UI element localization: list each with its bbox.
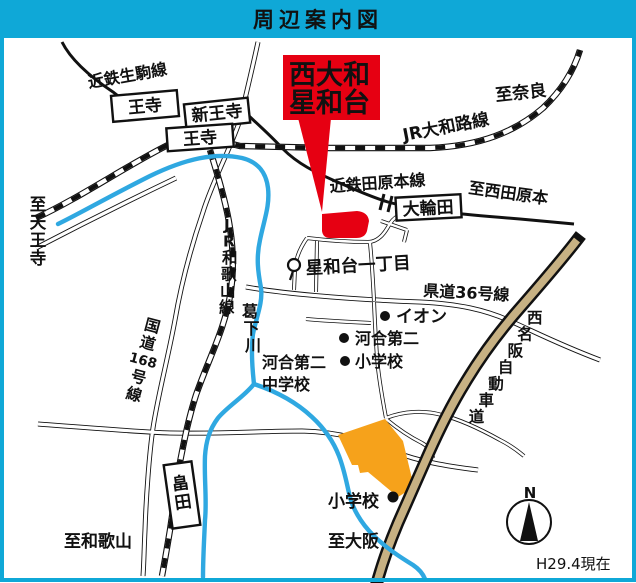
kawai2-jhs-line2: 中学校 (262, 375, 311, 394)
location-dot (340, 356, 350, 366)
south-elem-label: 小学校 (328, 491, 380, 512)
map-canvas: 王寺 新王寺 王寺 大輪田 畠田 西大和 星和台 近鉄生駒線 JR大和路線 近鉄… (0, 0, 636, 583)
station-oji-kintetsu: 王寺 (111, 90, 179, 122)
station-label: 王寺 (127, 95, 163, 119)
station-label: 大輪田 (402, 197, 454, 221)
page-title: 周辺案内図 (253, 8, 383, 32)
seiwadai-site-area (322, 211, 369, 238)
callout-line2: 星和台 (289, 87, 370, 119)
station-oji-jr: 王寺 (166, 124, 233, 152)
kawai2-elem-line2: 小学校 (355, 352, 404, 371)
to-osaka-label: 至大阪 (328, 531, 379, 552)
location-dot (380, 311, 390, 321)
kawai2-jhs-line1: 河合第二 (262, 353, 326, 372)
location-dot (339, 333, 349, 343)
area-guide-map: 王寺 新王寺 王寺 大輪田 畠田 西大和 星和台 近鉄生駒線 JR大和路線 近鉄… (0, 0, 636, 583)
location-dot (388, 492, 399, 503)
station-owada: 大輪田 (395, 194, 461, 220)
station-label: 王寺 (182, 127, 217, 150)
aeon-label: イオン (396, 307, 447, 327)
to-wakayama-label: 至和歌山 (64, 531, 132, 552)
date-note: H29.4現在 (536, 555, 611, 573)
to-tennoji-label: 至天王寺 (30, 195, 47, 268)
bus-stop-icon (288, 259, 300, 271)
kawai2-elem-line1: 河合第二 (355, 329, 419, 348)
callout-line1: 西大和 (289, 60, 370, 91)
